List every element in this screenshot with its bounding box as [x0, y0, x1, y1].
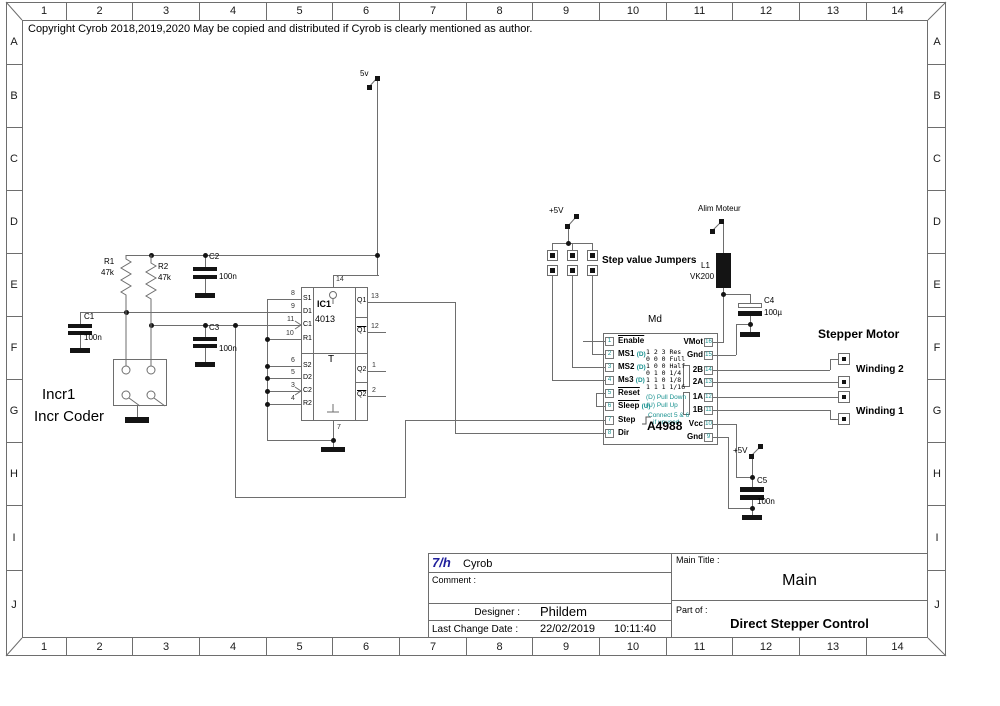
wire — [126, 255, 379, 256]
wire — [80, 312, 81, 324]
grid-column-label: 7 — [400, 2, 467, 20]
wire — [368, 371, 386, 372]
wire — [713, 410, 830, 411]
ic1-pin-number: 6 — [291, 357, 295, 365]
driver-part: A4988 — [647, 420, 682, 433]
wire — [736, 324, 737, 355]
wire — [723, 224, 724, 253]
ic1-pin-label: Q2 — [357, 391, 366, 399]
driver-pin-number: 10 — [704, 420, 713, 429]
driver-pin-number: 15 — [704, 351, 713, 360]
driver-note-pull-down: (D) Pull Down — [646, 394, 686, 401]
junction-dot — [748, 322, 753, 327]
grid-column-label: 4 — [200, 2, 267, 20]
schematic-sheet: 1 2 3 4 5 6 7 8 9 10 11 12 13 14 1 2 3 4… — [0, 0, 1000, 706]
ic1-pin-label: Q1 — [357, 327, 366, 335]
wire — [830, 410, 831, 419]
ic1-pin-number: 10 — [286, 330, 294, 338]
power-flag-5v-jumpers-label: +5V — [549, 207, 563, 216]
driver-pin-number: 3 — [605, 363, 614, 372]
capacitor-c3-value: 100n — [219, 345, 237, 354]
driver-pin-label: Step — [618, 416, 635, 425]
motor-connector-pad — [842, 417, 846, 421]
ic1-pin-number: 11 — [287, 316, 294, 324]
driver-pin-label: Ms3 (D) — [618, 376, 645, 385]
capacitor-c5-plate — [740, 487, 764, 492]
grid-column-label: 5 — [267, 638, 333, 656]
capacitor-c3-plate — [193, 337, 217, 341]
driver-pin-number: 9 — [704, 433, 713, 442]
capacitor-c4-value: 100µ — [764, 309, 782, 318]
ic1-divider — [301, 353, 368, 354]
capacitor-c1-ref: C1 — [84, 313, 94, 322]
motor-connector-pad — [842, 395, 846, 399]
driver-pin-label-text: MS2 — [618, 362, 634, 371]
capacitor-c3-plate — [193, 344, 217, 348]
wire — [368, 332, 386, 333]
encoder-body — [113, 359, 167, 406]
junction-dot — [265, 337, 270, 342]
wire — [728, 437, 729, 508]
junction-dot — [124, 310, 129, 315]
wire — [405, 420, 605, 421]
capacitor-c1-plate — [68, 324, 92, 328]
junction-dot — [566, 241, 571, 246]
driver-ref: Md — [648, 314, 662, 325]
grid-row-label: I — [928, 506, 946, 571]
driver-pin-suffix: (D) — [637, 364, 646, 371]
ic1-pin-number: 3 — [291, 382, 295, 390]
jumper-pin-pad — [550, 253, 555, 258]
resistor-r2-ref: R2 — [158, 263, 168, 272]
power-flag-5v-label: 5v — [360, 70, 368, 79]
jumper-pin-pad — [590, 268, 595, 273]
junction-dot — [203, 323, 208, 328]
wire — [205, 348, 206, 362]
wire — [830, 359, 831, 370]
jumper-pin-pad — [550, 268, 555, 273]
junction-dot — [331, 438, 336, 443]
driver-pin-number: 12 — [704, 393, 713, 402]
capacitor-c4-plate — [738, 311, 762, 316]
wire — [267, 404, 302, 405]
grid-row-label: F — [6, 317, 22, 380]
driver-pin-label-text: Enable — [618, 336, 644, 345]
ic1-pin-label: R1 — [303, 335, 312, 343]
grid-column-label: 2 — [67, 638, 133, 656]
ic1-part: 4013 — [315, 315, 335, 325]
wire — [151, 325, 302, 326]
driver-pin-label: VMot — [663, 338, 703, 347]
ic1-divider — [355, 317, 368, 318]
grid-row-label: H — [6, 443, 22, 506]
capacitor-c5-value: 100n — [757, 498, 775, 507]
ic1-pin-label: D1 — [303, 308, 312, 316]
ground-symbol — [195, 362, 215, 367]
ic1-pin-number: 2 — [372, 387, 376, 395]
part-of-title: Direct Stepper Control — [671, 617, 928, 631]
jumper-pin-pad — [570, 268, 575, 273]
wire — [583, 341, 605, 342]
inductor-l1-value: VK200 — [690, 273, 714, 282]
wire — [267, 378, 302, 379]
grid-row-label: B — [928, 65, 946, 128]
driver-pin-number: 6 — [605, 402, 614, 411]
grid-column-label: 3 — [133, 2, 200, 20]
wire — [713, 397, 838, 398]
junction-dot — [265, 389, 270, 394]
grid-column-label: 14 — [867, 2, 928, 20]
ic1-pin-label: C1 — [303, 321, 312, 329]
grid-column-label: 11 — [667, 2, 733, 20]
grid-row-label: B — [6, 65, 22, 128]
sheet-inner-border — [22, 20, 928, 638]
capacitor-c4-ref: C4 — [764, 297, 774, 306]
junction-dot — [375, 253, 380, 258]
wire — [455, 302, 456, 434]
grid-column-label: 6 — [333, 638, 400, 656]
wire — [267, 299, 302, 300]
capacitor-c2-plate — [193, 267, 217, 271]
junction-dot — [149, 323, 154, 328]
designer-name: Phildem — [540, 605, 587, 619]
part-of-label: Part of : — [676, 606, 708, 616]
driver-pin-number: 16 — [704, 338, 713, 347]
driver-pin-number: 14 — [704, 366, 713, 375]
ic1-pin-number: 5 — [291, 369, 295, 377]
grid-column-label: 11 — [667, 638, 733, 656]
grid-column-label: 4 — [200, 638, 267, 656]
ic1-center-label: T — [328, 354, 334, 365]
title-block-line — [671, 600, 928, 601]
inductor-l1-ref: L1 — [701, 262, 710, 271]
ground-symbol — [742, 515, 762, 520]
grid-row-label: G — [6, 380, 22, 443]
wire — [552, 380, 606, 381]
grid-row-label: E — [6, 254, 22, 317]
grid-row-label: G — [928, 380, 946, 443]
grid-row-label: J — [6, 571, 22, 638]
company-name: Cyrob — [463, 558, 492, 570]
ic1-pin-label: S1 — [303, 295, 312, 303]
wire — [267, 339, 302, 340]
wire — [377, 81, 378, 275]
ic1-pin-label: R2 — [303, 400, 312, 408]
cyrob-logo: 7/h — [432, 556, 451, 570]
grid-row-label: F — [928, 317, 946, 380]
winding1-label: Winding 1 — [856, 406, 904, 417]
grid-column-label: 3 — [133, 638, 200, 656]
driver-pin-number: 4 — [605, 376, 614, 385]
driver-pin-number: 1 — [605, 337, 614, 346]
capacitor-c5-ref: C5 — [757, 477, 767, 486]
wire — [455, 433, 605, 434]
winding2-label: Winding 2 — [856, 364, 904, 375]
driver-pin-number: 8 — [605, 429, 614, 438]
jumper-pin-pad — [590, 253, 595, 258]
ic1-pin-label: C2 — [303, 387, 312, 395]
wire — [267, 366, 302, 367]
ic1-pin-number: 14 — [336, 276, 344, 284]
ic1-pin-number: 9 — [291, 303, 295, 311]
driver-pin-label: Enable — [618, 337, 644, 346]
ic1-ref: IC1 — [317, 300, 331, 310]
driver-pin-label-text: MS1 — [618, 349, 634, 358]
main-title: Main — [671, 572, 928, 590]
ic1-pin-label: S2 — [303, 362, 312, 370]
junction-dot — [233, 323, 238, 328]
driver-pin-number: 7 — [605, 416, 614, 425]
power-flag-5v-vcc-label: +5V — [733, 447, 747, 456]
ground-symbol — [125, 417, 149, 423]
wire — [596, 393, 597, 407]
wire — [80, 335, 81, 348]
wire — [205, 279, 206, 293]
driver-pin-number: 11 — [704, 406, 713, 415]
driver-note-pull-up: (U) Pull Up — [646, 402, 678, 409]
grid-column-label: 8 — [467, 638, 533, 656]
ground-symbol — [321, 447, 345, 452]
encoder-label: Incr Coder — [34, 409, 104, 426]
grid-column-label: 10 — [600, 638, 667, 656]
grid-column-label: 13 — [800, 2, 867, 20]
grid-column-label: 1 — [22, 638, 67, 656]
grid-row-label: H — [928, 443, 946, 506]
grid-column-label: 12 — [733, 638, 800, 656]
title-block-line — [428, 572, 671, 573]
wire — [235, 497, 406, 498]
grid-column-label: 9 — [533, 2, 600, 20]
grid-column-label: 9 — [533, 638, 600, 656]
wire — [80, 312, 302, 313]
ic1-pin-label: Q1 — [357, 297, 366, 305]
ic1-pin-number: 7 — [337, 424, 341, 432]
wire — [368, 302, 456, 303]
junction-dot — [203, 253, 208, 258]
grid-column-label: 2 — [67, 2, 133, 20]
jumper-pin-pad — [570, 253, 575, 258]
junction-dot — [750, 475, 755, 480]
last-change-time: 10:11:40 — [614, 623, 656, 635]
grid-row-label: A — [928, 20, 946, 65]
wire — [267, 299, 268, 441]
ic1-pin-number: 1 — [372, 362, 376, 370]
driver-pin-label-text: Dir — [618, 428, 629, 437]
jumpers-label: Step value Jumpers — [602, 255, 696, 266]
grid-row-label: J — [928, 571, 946, 638]
last-change-date-label: Last Change Date : — [432, 624, 518, 635]
title-block-line — [428, 620, 671, 621]
driver-pin-label-text: Ms3 — [618, 375, 634, 384]
wire — [552, 276, 553, 381]
grid-column-label: 1 — [22, 2, 67, 20]
junction-dot — [265, 364, 270, 369]
grid-column-label: 12 — [733, 2, 800, 20]
capacitor-c2-value: 100n — [219, 273, 237, 282]
grid-row-label: C — [928, 128, 946, 191]
last-change-date: 22/02/2019 — [540, 623, 595, 635]
wire — [267, 440, 334, 441]
driver-pin-label: Gnd — [663, 433, 703, 442]
motor-connector-pad — [842, 357, 846, 361]
junction-dot — [149, 253, 154, 258]
driver-pin-number: 5 — [605, 389, 614, 398]
ic1-pin-number: 8 — [291, 290, 295, 298]
capacitor-c2-ref: C2 — [209, 253, 219, 262]
ic1-divider — [355, 382, 368, 383]
driver-pin-label-text: Step — [618, 415, 635, 424]
wire — [572, 276, 573, 368]
grid-column-label: 7 — [400, 638, 467, 656]
grid-column-label: 14 — [867, 638, 928, 656]
copyright-text: Copyright Cyrob 2018,2019,2020 May be co… — [28, 23, 532, 35]
grid-column-label: 6 — [333, 2, 400, 20]
ground-symbol — [740, 332, 760, 337]
driver-pin-label-text: Reset — [618, 388, 640, 397]
wire — [723, 294, 751, 295]
ic1-pin-number: 12 — [371, 323, 379, 331]
driver-pin-suffix: (D) — [636, 377, 645, 384]
inductor-l1-body — [716, 253, 731, 288]
grid-row-label: E — [928, 254, 946, 317]
motor-connector-pad — [842, 380, 846, 384]
grid-row-label: I — [6, 506, 22, 571]
grid-column-label: 8 — [467, 2, 533, 20]
main-title-label: Main Title : — [676, 556, 720, 566]
junction-dot — [265, 402, 270, 407]
driver-pin-number: 13 — [704, 378, 713, 387]
wire — [592, 276, 593, 355]
wire — [713, 382, 838, 383]
grid-column-label: 5 — [267, 2, 333, 20]
driver-pin-label: Reset — [618, 389, 640, 398]
driver-pin-label: Dir — [618, 429, 629, 438]
capacitor-c2-plate — [193, 275, 217, 279]
comment-label: Comment : — [432, 576, 476, 586]
capacitor-c4-plate-positive — [738, 303, 762, 308]
wire — [333, 421, 334, 447]
ground-symbol — [70, 348, 90, 353]
wire — [713, 370, 830, 371]
driver-pin-suffix: (D) — [637, 351, 646, 358]
resistor-r2-value: 47k — [158, 274, 171, 283]
junction-dot — [750, 506, 755, 511]
driver-pin-label-text: Sleep — [618, 401, 639, 410]
grid-row-label: D — [928, 191, 946, 254]
ic1-pin-label: D2 — [303, 374, 312, 382]
wire — [405, 420, 406, 498]
junction-dot — [721, 292, 726, 297]
junction-dot — [265, 376, 270, 381]
ground-symbol — [195, 293, 215, 298]
encoder-ref: Incr1 — [42, 387, 75, 404]
driver-pin-label: MS1 (D) — [618, 350, 646, 359]
grid-column-label: 13 — [800, 638, 867, 656]
wire — [368, 396, 386, 397]
ic1-pin-label: Q2 — [357, 366, 366, 374]
driver-microstep-table-row: 1 1 1 1/16 — [646, 384, 685, 391]
resistor-r1-ref: R1 — [104, 258, 114, 267]
designer-label: Designer : — [430, 607, 520, 618]
wire — [333, 275, 334, 287]
stepper-motor-title: Stepper Motor — [818, 328, 899, 341]
wire — [572, 367, 606, 368]
capacitor-c1-value: 100n — [84, 334, 102, 343]
grid-column-label: 10 — [600, 2, 667, 20]
ic1-divider — [355, 287, 356, 421]
alim-moteur-label: Alim Moteur — [698, 205, 741, 214]
ic1-pin-number: 4 — [291, 395, 295, 403]
grid-row-label: D — [6, 191, 22, 254]
resistor-r1-value: 47k — [101, 269, 114, 278]
grid-row-label: C — [6, 128, 22, 191]
wire — [752, 459, 753, 487]
driver-pin-number: 2 — [605, 350, 614, 359]
capacitor-c3-ref: C3 — [209, 324, 219, 333]
driver-pin-label: MS2 (D) — [618, 363, 646, 372]
ic1-divider — [313, 287, 314, 421]
wire — [267, 391, 302, 392]
grid-row-label: A — [6, 20, 22, 65]
ic1-pin-number: 13 — [371, 293, 379, 301]
